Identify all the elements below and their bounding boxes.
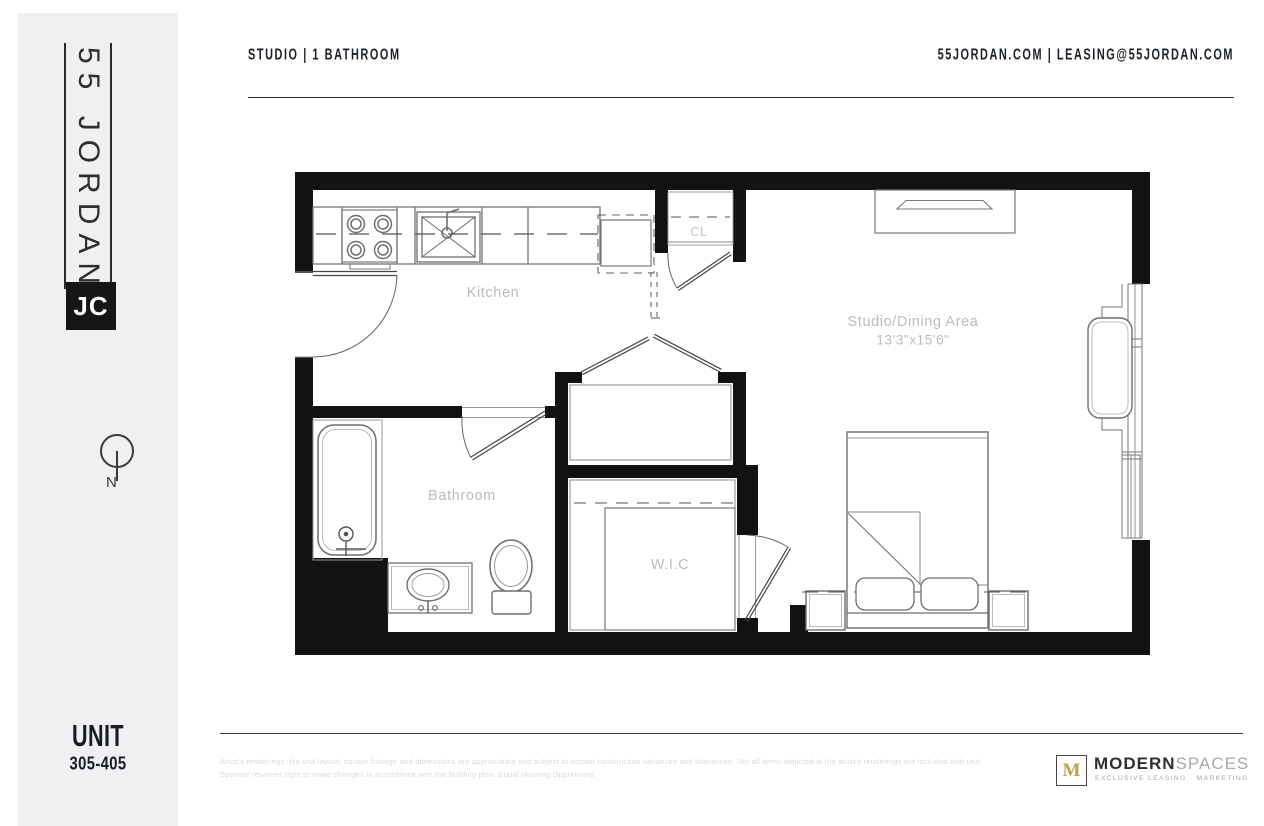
modern-spaces-tagline: EXCLUSIVE LEASING · MARKETING	[1095, 775, 1249, 782]
modern-spaces-name: MODERNSPACES	[1094, 754, 1249, 774]
dresser-tv-icon	[875, 190, 1015, 233]
sofa-icon	[1088, 318, 1132, 418]
closet-label: CL	[690, 225, 707, 239]
vanity-sink-icon	[388, 563, 472, 613]
entry-double-doors	[581, 334, 721, 374]
floorplan	[0, 0, 1264, 826]
pillow-left	[856, 578, 914, 610]
disclaimer-line-2: Sponsor reserves right to make changes i…	[220, 770, 596, 779]
fridge-icon	[598, 215, 660, 318]
closet-cl	[668, 192, 733, 291]
entry-vestibule	[570, 385, 731, 460]
toilet-icon	[490, 540, 532, 614]
bathtub-icon	[313, 420, 382, 560]
stove-icon	[342, 210, 397, 262]
bathroom-label: Bathroom	[428, 488, 496, 504]
flyer-page: 55 JORDAN JC N UNIT 305-405 STUDIO | 1 B…	[0, 0, 1264, 826]
modern-spaces-name-bold: MODERN	[1094, 754, 1176, 773]
pillow-right	[921, 578, 978, 610]
studio-dimensions-label: 13'3"x15'6"	[876, 333, 949, 348]
disclaimer-line-1: Artist's renderings, the unit layout, sq…	[220, 757, 982, 766]
nightstand-left	[806, 591, 845, 630]
footer-divider	[220, 733, 1243, 734]
modern-spaces-mark: M	[1056, 755, 1087, 786]
sink-icon	[417, 209, 480, 262]
bathroom-door	[462, 408, 547, 461]
kitchen-label: Kitchen	[467, 285, 520, 301]
bed-icon	[802, 432, 1032, 630]
modern-spaces-name-light: SPACES	[1176, 754, 1250, 773]
studio-label: Studio/Dining Area	[848, 314, 979, 330]
kitchen-counter	[313, 207, 600, 269]
nightstand-right	[989, 591, 1028, 630]
wic-label: W.I.C	[651, 557, 689, 573]
kitchen-entry-door	[295, 272, 397, 358]
